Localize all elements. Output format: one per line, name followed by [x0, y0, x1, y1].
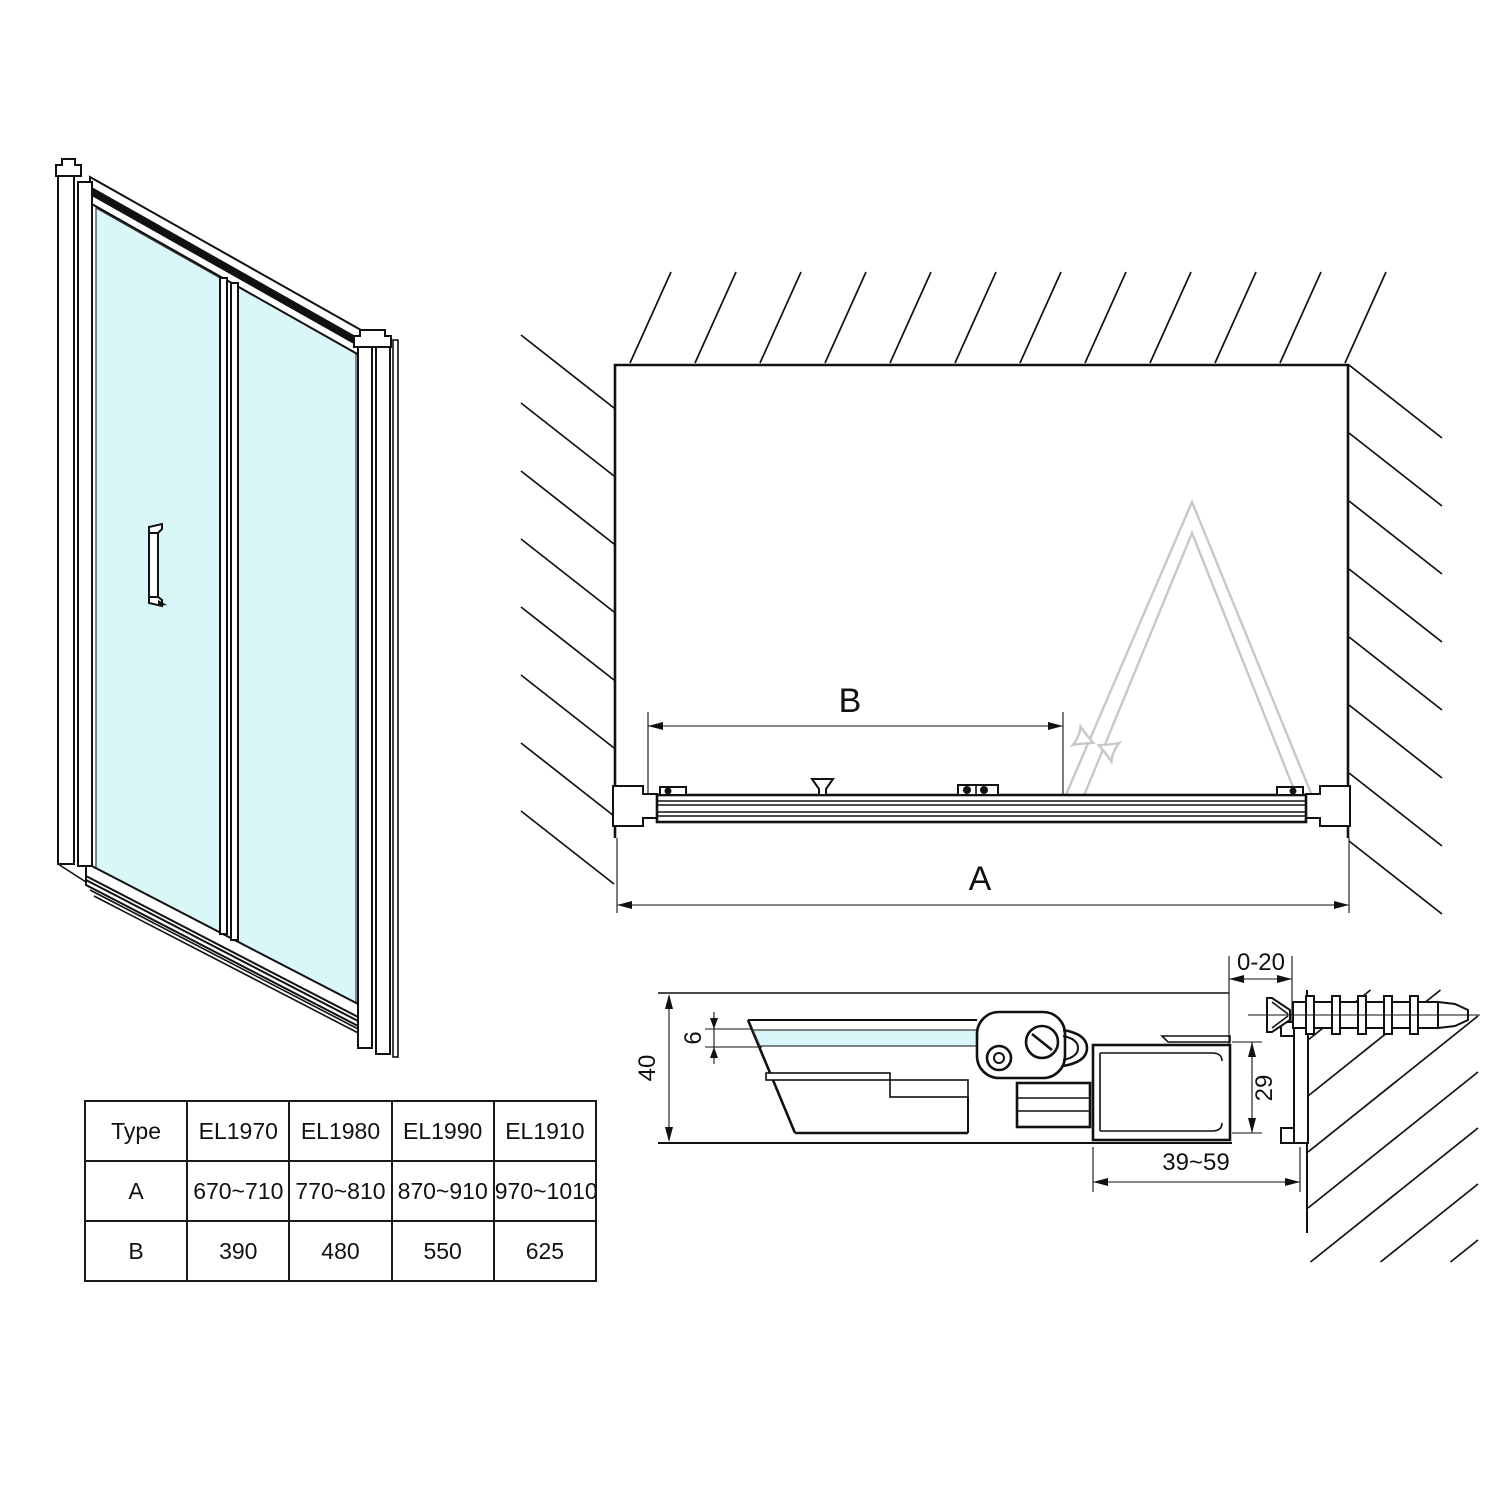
section-wall-profile: [1281, 1022, 1308, 1143]
dim-29-label: 29: [1251, 1075, 1278, 1102]
hatch-line: [1349, 501, 1442, 574]
left-wall-profile: [56, 159, 92, 866]
table-row-b: B 390 480 550 625: [85, 1221, 596, 1281]
table-row-a: A 670~710 770~810 870~910 970~1010: [85, 1161, 596, 1221]
hatch-line: [1280, 272, 1321, 363]
hatch-line: [1381, 1184, 1479, 1262]
hatch-line: [521, 335, 614, 408]
plan-view-niche: B A: [521, 272, 1442, 914]
section-door-panel: [748, 1020, 980, 1133]
table-header-cell: EL1980: [289, 1101, 391, 1161]
hatch-line: [521, 743, 614, 816]
hatch-line: [955, 272, 996, 363]
ghost-folded-door: [1065, 502, 1313, 798]
wall-hatch-left: [521, 335, 614, 884]
hatch-line: [890, 272, 931, 363]
section-channel-profile: [1093, 1036, 1230, 1140]
section-glass: [753, 1030, 980, 1046]
right-wall-profile: [354, 330, 398, 1057]
hatch-line: [1349, 569, 1442, 642]
hatch-line: [1308, 1016, 1478, 1152]
hatch-line: [1085, 272, 1126, 363]
hatch-line: [1349, 705, 1442, 778]
handle-top-view: [812, 779, 833, 795]
right-profile-cap: [354, 330, 391, 347]
table-cell: 970~1010: [494, 1161, 596, 1221]
hatch-line: [1451, 1240, 1479, 1262]
hatch-line: [521, 607, 614, 680]
dim-b-label: B: [839, 682, 862, 720]
track-roller-right: [1277, 787, 1303, 795]
dimension-40: 40: [634, 994, 673, 1142]
wall-hatch-right: [1349, 365, 1442, 914]
hatch-line: [1349, 637, 1442, 710]
hatch-line: [1215, 272, 1256, 363]
table-cell: A: [85, 1161, 187, 1221]
dim-0-20-label: 0-20: [1237, 949, 1285, 976]
hatch-line: [521, 811, 614, 884]
hatch-line: [825, 272, 866, 363]
hatch-line: [1349, 433, 1442, 506]
table-cell: 670~710: [187, 1161, 289, 1221]
table-cell: 870~910: [392, 1161, 494, 1221]
hatch-line: [1349, 365, 1442, 438]
track-center-hinge: [958, 785, 998, 795]
fold-mullion: [220, 278, 238, 940]
hatch-line: [1345, 272, 1386, 363]
hatch-line: [1020, 272, 1061, 363]
dim-6-label: 6: [680, 1031, 707, 1044]
door-track-profile: [613, 779, 1350, 826]
left-profile-cap: [56, 159, 81, 176]
track-roller-left: [660, 787, 686, 795]
hatch-line: [1349, 773, 1442, 846]
size-table: Type EL1970 EL1980 EL1990 EL1910 A 670~7…: [84, 1100, 597, 1282]
hatch-line: [521, 403, 614, 476]
hatch-line: [1150, 272, 1191, 363]
section-detail-view: 40 6: [634, 949, 1480, 1262]
dim-39-59-label: 39~59: [1162, 1149, 1229, 1176]
hatch-line: [630, 272, 671, 363]
hatch-line: [1349, 841, 1442, 914]
table-row-header: Type EL1970 EL1980 EL1990 EL1910: [85, 1101, 596, 1161]
front-view-folding-door: [56, 159, 398, 1057]
hatch-line: [695, 272, 736, 363]
ghost-handle: [1073, 727, 1119, 762]
hatch-line: [1308, 1072, 1478, 1208]
wall-hatch-top: [630, 272, 1386, 363]
dimension-b: B: [648, 682, 1063, 795]
wall-bracket-right: [1306, 786, 1350, 826]
hatch-line: [521, 675, 614, 748]
glass-panel-right: [238, 286, 356, 1003]
hatch-line: [1311, 1128, 1479, 1262]
hatch-line: [521, 471, 614, 544]
table-header-cell: Type: [85, 1101, 187, 1161]
table-header-cell: EL1910: [494, 1101, 596, 1161]
table-cell: 625: [494, 1221, 596, 1281]
section-hinge: [977, 1012, 1090, 1127]
technical-drawing-canvas: B A 40: [0, 0, 1500, 1500]
wall-bracket-left: [613, 786, 657, 826]
table-cell: 550: [392, 1221, 494, 1281]
table-header-cell: EL1990: [392, 1101, 494, 1161]
dimension-a: A: [617, 838, 1349, 913]
dimension-29: 29: [1232, 1042, 1278, 1133]
dimension-39-59: 39~59: [1093, 1147, 1300, 1192]
hatch-line: [521, 539, 614, 612]
table-cell: B: [85, 1221, 187, 1281]
dim-a-label: A: [969, 860, 992, 898]
table-cell: 770~810: [289, 1161, 391, 1221]
dim-40-label: 40: [634, 1055, 661, 1082]
table-header-cell: EL1970: [187, 1101, 289, 1161]
hatch-line: [760, 272, 801, 363]
table-cell: 480: [289, 1221, 391, 1281]
table-cell: 390: [187, 1221, 289, 1281]
